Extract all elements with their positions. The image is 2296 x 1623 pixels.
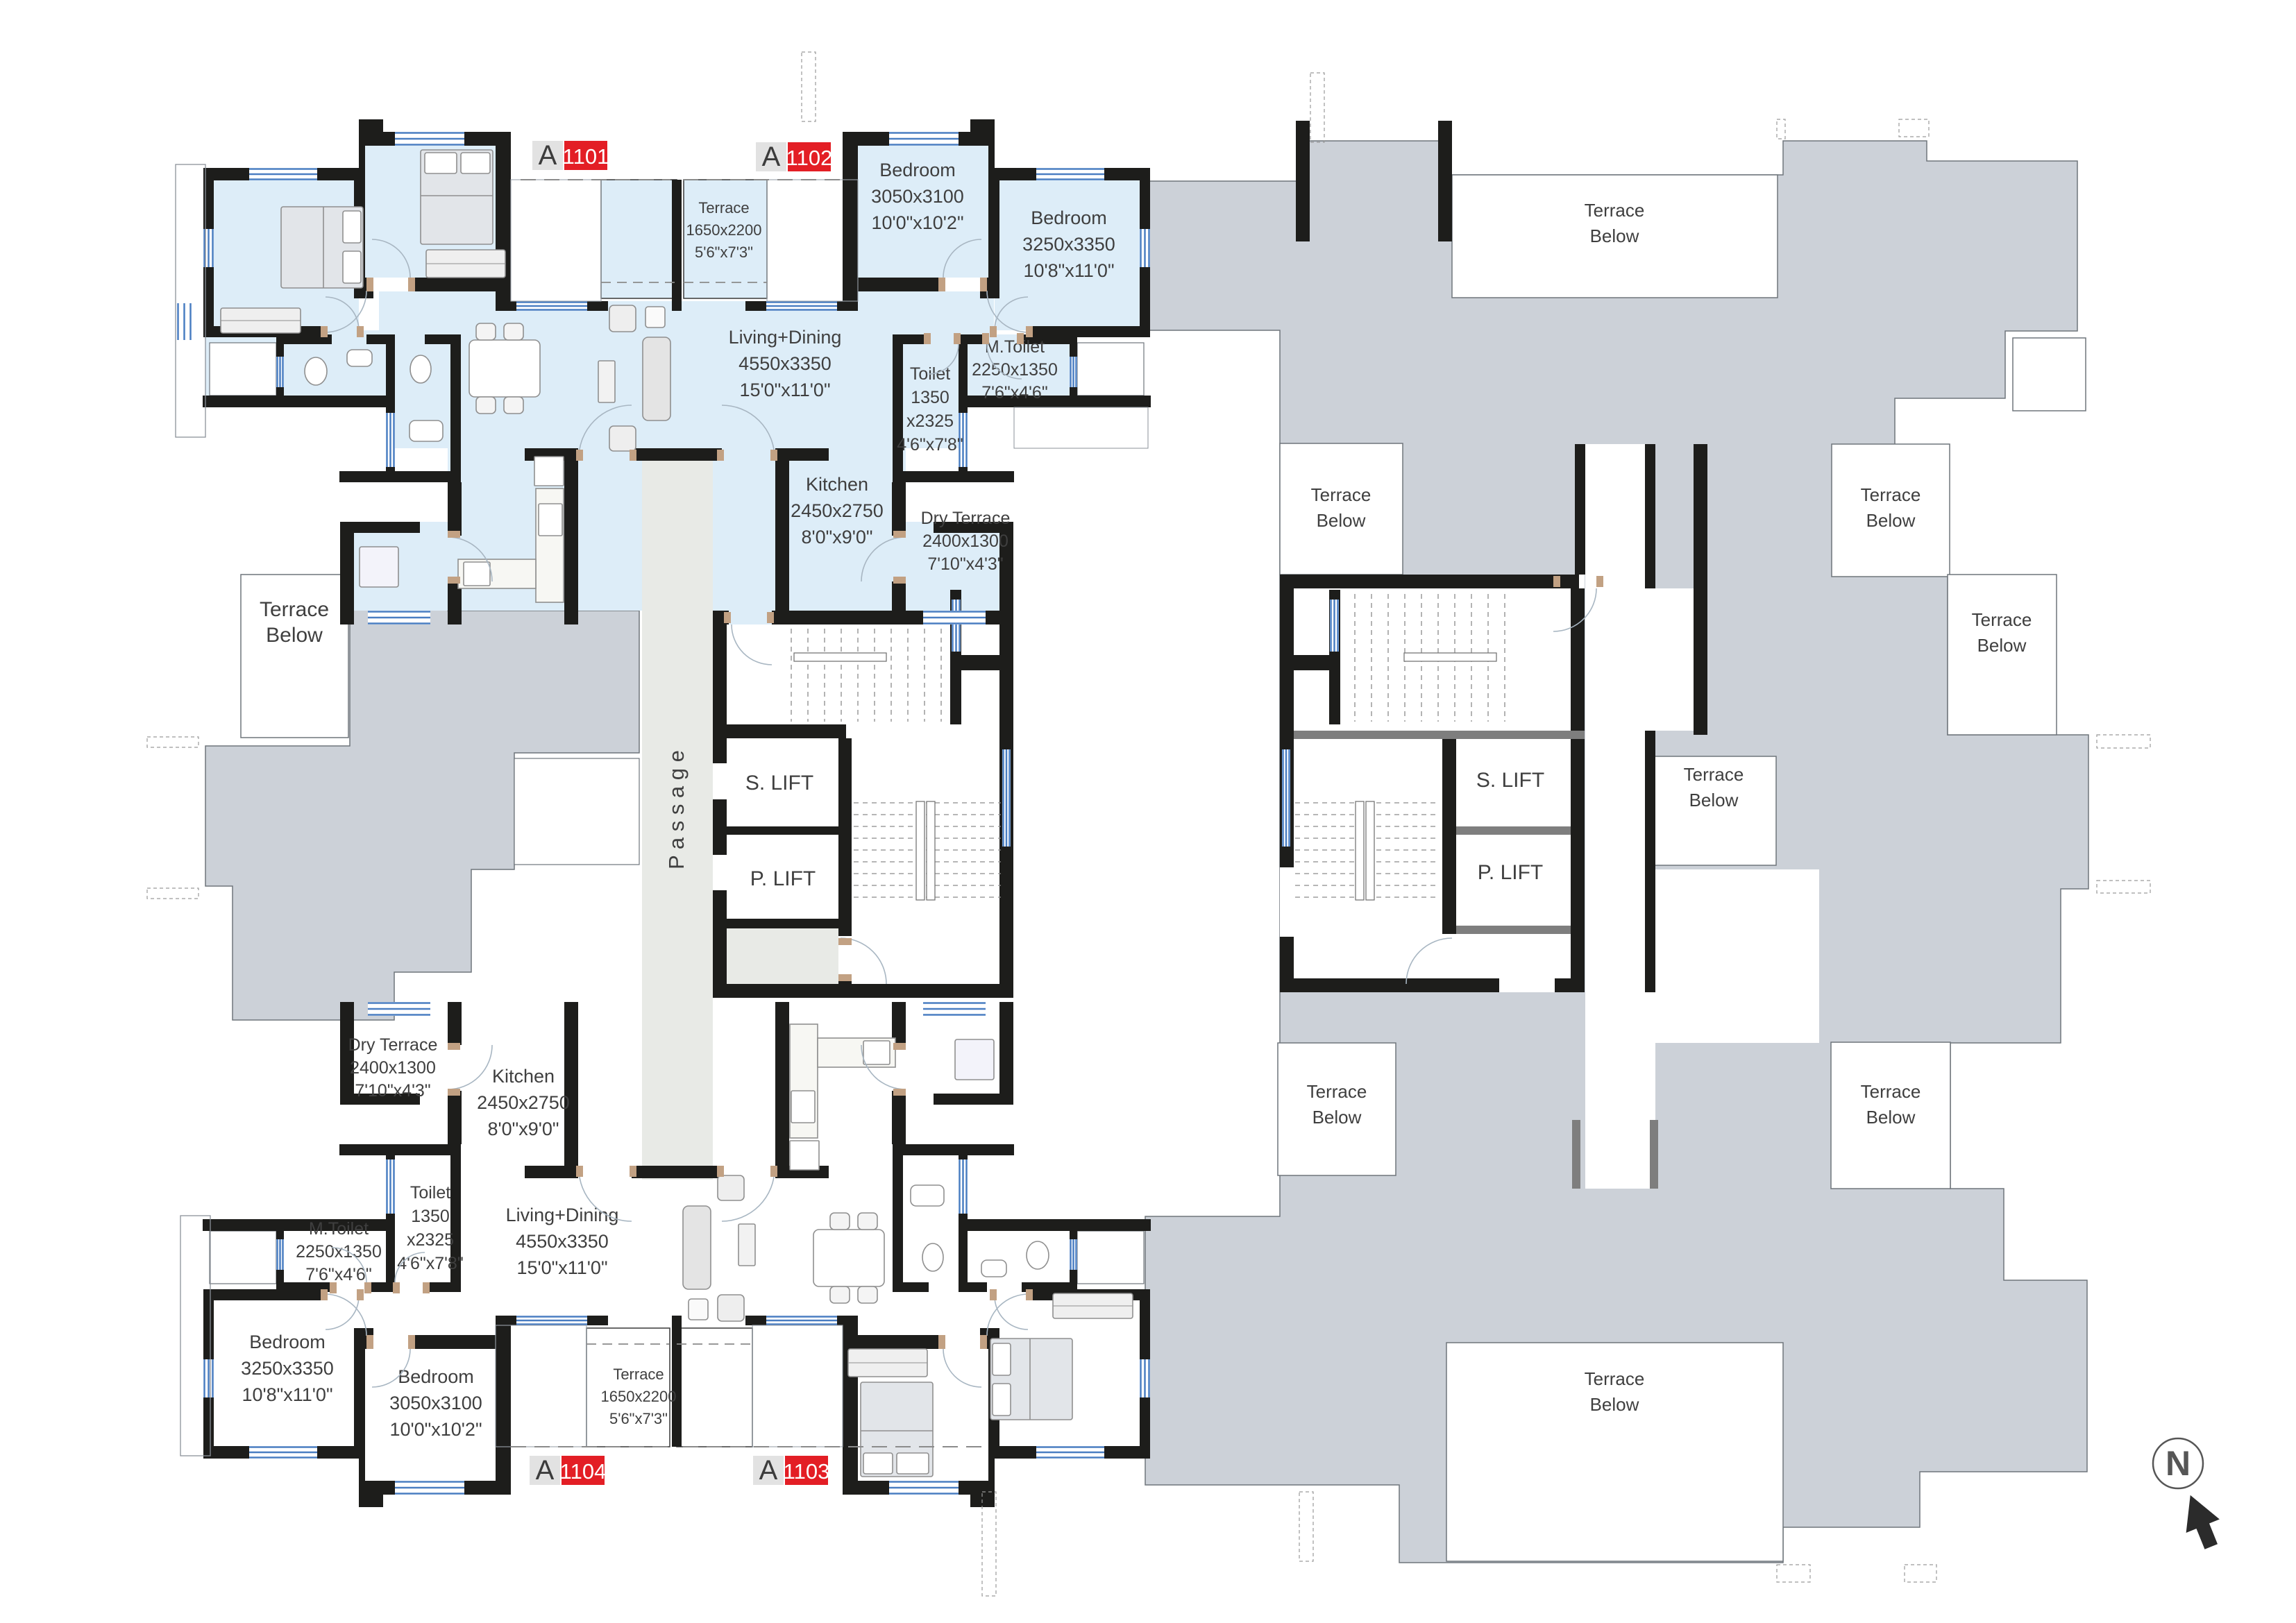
svg-text:Terrace: Terrace [698, 199, 749, 216]
svg-text:1103: 1103 [784, 1459, 830, 1484]
svg-text:S. LIFT: S. LIFT [745, 772, 813, 794]
svg-text:7'6"x4'6": 7'6"x4'6" [981, 383, 1047, 402]
svg-text:1650x2200: 1650x2200 [686, 221, 762, 239]
svg-text:2400x1300: 2400x1300 [350, 1058, 436, 1078]
svg-text:15'0"x11'0": 15'0"x11'0" [516, 1257, 607, 1278]
svg-text:P. LIFT: P. LIFT [750, 867, 816, 890]
svg-text:M.Toilet: M.Toilet [309, 1219, 369, 1239]
svg-text:A: A [762, 142, 781, 172]
svg-text:7'6"x4'6": 7'6"x4'6" [305, 1265, 371, 1284]
svg-text:Below: Below [1866, 1107, 1916, 1128]
svg-text:Terrace: Terrace [1585, 1368, 1645, 1389]
svg-text:3050x3100: 3050x3100 [871, 186, 964, 207]
svg-text:3250x3350: 3250x3350 [1022, 234, 1115, 255]
svg-text:Below: Below [1317, 510, 1366, 531]
svg-text:Terrace: Terrace [1307, 1081, 1367, 1102]
svg-text:2250x1350: 2250x1350 [296, 1242, 382, 1261]
svg-text:A: A [759, 1455, 778, 1486]
svg-text:Terrace: Terrace [260, 598, 329, 621]
svg-text:Living+Dining: Living+Dining [729, 327, 842, 348]
svg-text:3250x3350: 3250x3350 [241, 1358, 334, 1379]
svg-text:15'0"x11'0": 15'0"x11'0" [739, 380, 830, 400]
svg-text:M.Toilet: M.Toilet [985, 337, 1045, 357]
svg-text:Terrace: Terrace [1585, 200, 1645, 221]
svg-text:Bedroom: Bedroom [398, 1366, 474, 1387]
svg-text:4'6"x7'8": 4'6"x7'8" [397, 1254, 463, 1273]
svg-text:S. LIFT: S. LIFT [1476, 769, 1544, 792]
svg-text:1102: 1102 [786, 146, 833, 170]
svg-text:2450x2750: 2450x2750 [791, 500, 884, 521]
svg-text:5'6"x7'3": 5'6"x7'3" [609, 1410, 668, 1427]
svg-text:Below: Below [1312, 1107, 1362, 1128]
svg-text:1101: 1101 [563, 144, 609, 169]
svg-text:P a s s a g e: P a s s a g e [664, 750, 689, 869]
svg-text:Kitchen: Kitchen [806, 474, 868, 495]
svg-text:10'0"x10'2": 10'0"x10'2" [389, 1419, 482, 1440]
svg-text:N: N [2166, 1444, 2191, 1483]
svg-text:Toilet: Toilet [410, 1183, 450, 1203]
svg-text:A: A [539, 140, 557, 171]
svg-text:Below: Below [1866, 510, 1916, 531]
svg-text:1650x2200: 1650x2200 [601, 1388, 677, 1405]
svg-text:Living+Dining: Living+Dining [506, 1205, 619, 1225]
svg-text:2450x2750: 2450x2750 [477, 1092, 570, 1113]
svg-text:7'10"x4'3": 7'10"x4'3" [355, 1081, 430, 1101]
svg-text:10'0"x10'2": 10'0"x10'2" [871, 212, 963, 233]
svg-text:Dry Terrace: Dry Terrace [921, 509, 1011, 528]
svg-text:Terrace: Terrace [1311, 484, 1371, 505]
svg-text:Terrace: Terrace [1861, 484, 1921, 505]
svg-text:1104: 1104 [560, 1459, 607, 1484]
svg-text:Terrace: Terrace [1684, 764, 1744, 785]
svg-text:Below: Below [1689, 790, 1739, 810]
svg-text:Below: Below [266, 624, 323, 647]
svg-text:4550x3350: 4550x3350 [516, 1231, 609, 1252]
svg-text:4'6"x7'8": 4'6"x7'8" [897, 435, 963, 454]
svg-text:2400x1300: 2400x1300 [922, 532, 1008, 551]
svg-text:7'10"x4'3": 7'10"x4'3" [927, 554, 1003, 574]
svg-text:Bedroom: Bedroom [879, 160, 956, 180]
svg-text:Below: Below [1590, 226, 1639, 246]
svg-text:x2325: x2325 [906, 411, 954, 431]
svg-text:1350: 1350 [411, 1207, 450, 1226]
svg-text:Dry Terrace: Dry Terrace [348, 1035, 438, 1055]
svg-text:8'0"x9'0": 8'0"x9'0" [801, 527, 872, 547]
svg-text:4550x3350: 4550x3350 [738, 353, 832, 374]
svg-text:Kitchen: Kitchen [492, 1066, 555, 1087]
svg-text:Bedroom: Bedroom [1031, 207, 1107, 228]
svg-text:10'8"x11'0": 10'8"x11'0" [1023, 260, 1114, 281]
svg-text:Below: Below [1977, 635, 2027, 656]
svg-text:x2325: x2325 [407, 1230, 454, 1250]
svg-text:8'0"x9'0": 8'0"x9'0" [487, 1119, 559, 1139]
svg-text:2250x1350: 2250x1350 [972, 360, 1058, 380]
svg-text:P. LIFT: P. LIFT [1478, 861, 1543, 884]
svg-text:Bedroom: Bedroom [249, 1332, 326, 1352]
svg-text:3050x3100: 3050x3100 [389, 1393, 482, 1413]
svg-text:Below: Below [1590, 1394, 1639, 1415]
svg-text:1350: 1350 [911, 388, 949, 407]
svg-text:Terrace: Terrace [613, 1366, 664, 1383]
svg-text:10'8"x11'0": 10'8"x11'0" [242, 1384, 332, 1405]
svg-text:5'6"x7'3": 5'6"x7'3" [695, 244, 753, 261]
svg-text:Terrace: Terrace [1972, 609, 2032, 630]
svg-text:A: A [536, 1455, 555, 1486]
svg-text:Terrace: Terrace [1861, 1081, 1921, 1102]
